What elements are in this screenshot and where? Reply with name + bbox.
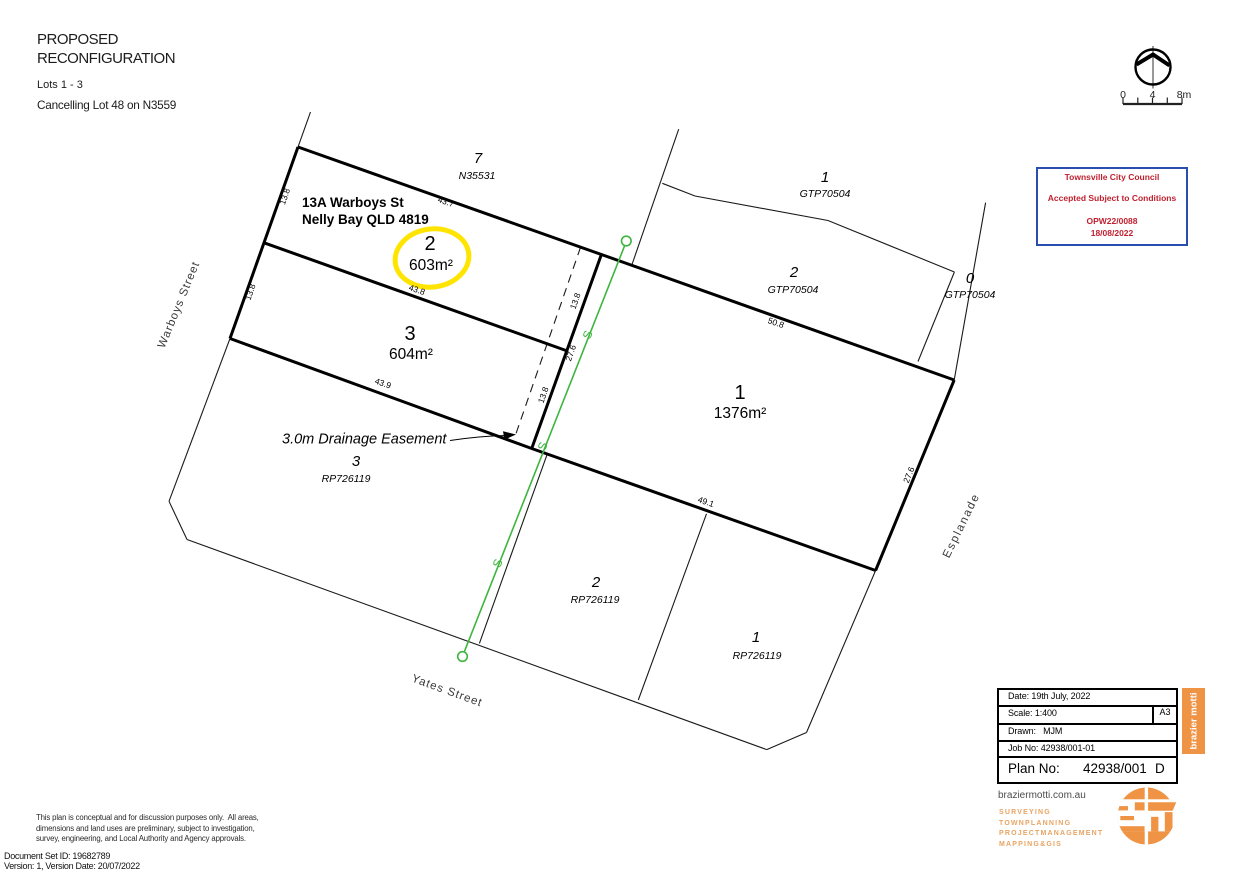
svg-text:Warboys Street: Warboys Street xyxy=(156,260,202,350)
svg-text:0: 0 xyxy=(966,270,975,287)
svg-text:8m: 8m xyxy=(1177,89,1192,101)
svg-text:13.8: 13.8 xyxy=(277,187,292,206)
svg-text:43.7: 43.7 xyxy=(437,194,456,209)
svg-text:S: S xyxy=(490,557,506,570)
svg-text:Esplanade: Esplanade xyxy=(941,491,983,560)
svg-text:RP726119: RP726119 xyxy=(322,473,371,485)
svg-text:GTP70504: GTP70504 xyxy=(768,284,819,296)
svg-text:1376m²: 1376m² xyxy=(714,405,767,422)
svg-text:GTP70504: GTP70504 xyxy=(800,188,851,200)
svg-text:Nelly Bay QLD 4819: Nelly Bay QLD 4819 xyxy=(302,212,429,227)
svg-text:N35531: N35531 xyxy=(459,170,496,182)
svg-text:604m²: 604m² xyxy=(389,346,433,363)
svg-text:S: S xyxy=(580,328,596,341)
svg-text:1: 1 xyxy=(734,382,745,404)
svg-text:3.0m Drainage Easement: 3.0m Drainage Easement xyxy=(282,432,447,448)
svg-text:13A Warboys St: 13A Warboys St xyxy=(302,195,404,210)
svg-text:RP726119: RP726119 xyxy=(733,650,782,662)
svg-text:2: 2 xyxy=(789,264,799,281)
svg-text:0: 0 xyxy=(1120,89,1126,101)
svg-text:3: 3 xyxy=(352,453,361,470)
svg-text:3: 3 xyxy=(404,323,415,345)
svg-text:603m²: 603m² xyxy=(409,257,453,274)
svg-text:1: 1 xyxy=(821,169,829,186)
svg-text:2: 2 xyxy=(591,574,601,591)
svg-text:2: 2 xyxy=(424,233,435,255)
svg-text:RP726119: RP726119 xyxy=(571,594,620,606)
svg-text:4: 4 xyxy=(1150,89,1156,101)
svg-text:13.8: 13.8 xyxy=(243,282,258,301)
svg-text:7: 7 xyxy=(474,150,483,167)
svg-text:GTP70504: GTP70504 xyxy=(945,289,996,301)
svg-text:13.8: 13.8 xyxy=(568,291,583,310)
svg-text:43.9: 43.9 xyxy=(374,376,393,391)
svg-text:1: 1 xyxy=(752,629,760,646)
svg-text:27.6: 27.6 xyxy=(563,343,578,362)
svg-text:Yates Street: Yates Street xyxy=(410,673,484,710)
